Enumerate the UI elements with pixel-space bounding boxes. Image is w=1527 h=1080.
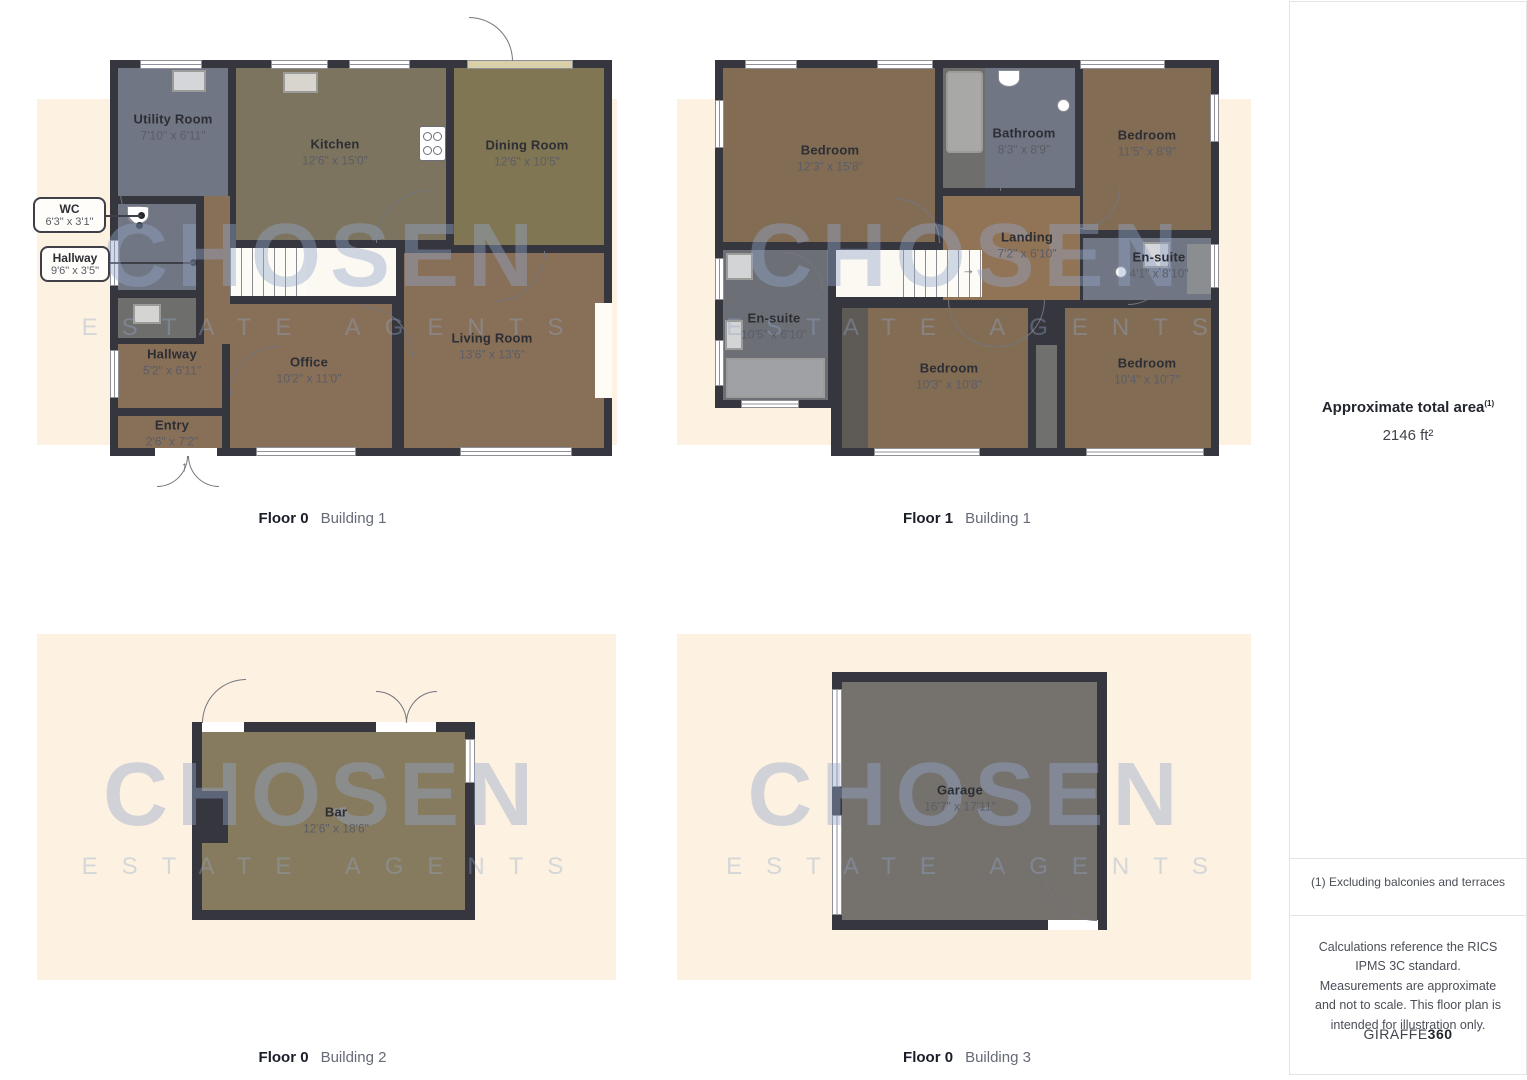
panel-caption: Floor 0Building 1 — [0, 510, 645, 527]
sidebar-divider — [1290, 858, 1526, 859]
window-icon — [741, 400, 799, 408]
window-icon — [349, 60, 410, 69]
sidebar-divider — [1290, 915, 1526, 916]
window-icon — [1210, 244, 1219, 288]
room-name: Dining Room — [485, 138, 568, 153]
room-name: Bedroom — [1114, 356, 1180, 371]
callout-leader — [110, 262, 194, 264]
sink-icon — [133, 304, 161, 324]
bathtub-icon — [946, 71, 983, 153]
room-dims: 10'3" x 10'8" — [916, 378, 982, 392]
footnote-marker: (1) — [1484, 399, 1494, 408]
window-icon — [1080, 60, 1165, 69]
living-recess — [595, 303, 612, 398]
stair-void — [306, 248, 396, 296]
caption-building: Building 2 — [321, 1049, 387, 1066]
room-hall-corridor — [204, 196, 230, 344]
room-label-ensuite-small: En-suite 4'1" x 8'10" — [1129, 250, 1188, 281]
callout-leader — [106, 215, 142, 217]
room-dims: 10'2" x 11'0" — [277, 372, 342, 386]
room-name: Utility Room — [134, 112, 213, 127]
room-label-ensuite-large: En-suite 10'5" x 6'10" — [741, 311, 807, 342]
window-icon — [715, 100, 724, 148]
callout-name: WC — [39, 202, 100, 216]
footnote-text: (1) Excluding balconies and terraces — [1300, 875, 1516, 889]
chimney-breast — [192, 791, 228, 843]
disclaimer-text: Calculations reference the RICS IPMS 3C … — [1314, 938, 1502, 1035]
total-area-title-text: Approximate total area — [1322, 399, 1485, 416]
landing-strip — [842, 308, 868, 448]
room-dims: 11'5" x 8'9" — [1118, 145, 1176, 159]
shower-icon — [726, 253, 753, 280]
window-icon — [877, 60, 933, 69]
room-name: Kitchen — [302, 137, 368, 152]
room-label-entry: Entry 2'6" x 7'2" — [146, 418, 198, 449]
panel-caption: Floor 0Building 2 — [0, 1049, 645, 1066]
bathtub-icon — [726, 358, 825, 398]
room-dims: 7'10" x 6'11" — [134, 129, 213, 143]
window-icon — [745, 60, 797, 69]
room-label-utility: Utility Room 7'10" x 6'11" — [134, 112, 213, 143]
garage-door-icon — [832, 689, 842, 787]
callout-hallway: Hallway 9'6" x 3'5" — [40, 246, 110, 282]
window-icon — [1210, 94, 1219, 142]
panel-caption: Floor 1Building 1 — [646, 510, 1288, 527]
window-icon — [715, 258, 724, 300]
room-label-office: Office 10'2" x 11'0" — [277, 355, 342, 386]
panel-floor0-building3: Garage 16'7" x 17'11" CHOSEN ESTATE AGEN… — [646, 539, 1288, 1076]
caption-floor: Floor 0 — [259, 510, 309, 527]
door-gap — [376, 722, 436, 732]
total-area-title: Approximate total area(1) — [1290, 399, 1526, 416]
window-icon — [874, 448, 980, 456]
room-name: En-suite — [741, 311, 807, 326]
callout-dims: 9'6" x 3'5" — [46, 265, 104, 277]
room-label-bathroom: Bathroom 8'3" x 8'9" — [993, 126, 1056, 157]
caption-building: Building 1 — [965, 510, 1031, 527]
room-name: En-suite — [1129, 250, 1188, 265]
hob-icon — [419, 126, 446, 161]
callout-name: Hallway — [46, 251, 104, 265]
room-dims: 8'3" x 8'9" — [993, 143, 1056, 157]
room-name: Bedroom — [1118, 128, 1176, 143]
caption-building: Building 1 — [321, 510, 387, 527]
panel-floor0-building2: Bar 12'6" x 18'6" CHOSEN ESTATE AGENTS F… — [0, 539, 645, 1076]
room-dims: 7'2" x 6'10" — [997, 247, 1056, 261]
room-label-hallway: Hallway 5'2" x 6'11" — [143, 347, 201, 378]
room-dims: 12'6" x 15'0" — [302, 154, 368, 168]
room-name: Office — [277, 355, 342, 370]
caption-floor: Floor 0 — [903, 1049, 953, 1066]
entry-door-gap — [155, 448, 217, 456]
info-sidebar: Approximate total area(1) 2146 ft² (1) E… — [1289, 1, 1527, 1075]
room-name: Bedroom — [797, 143, 863, 158]
patio-door-icon — [467, 60, 573, 69]
door-gap — [202, 722, 244, 732]
room-name: Bar — [303, 805, 369, 820]
room-name: Garage — [924, 783, 996, 798]
room-dims: 12'3" x 15'8" — [797, 160, 863, 174]
room-dims: 16'7" x 17'11" — [924, 800, 996, 814]
room-label-landing: Landing 7'2" x 6'10" — [997, 230, 1056, 261]
room-dims: 12'6" x 18'6" — [303, 822, 369, 836]
room-label-garage: Garage 16'7" x 17'11" — [924, 783, 996, 814]
room-label-bedroom2: Bedroom 11'5" x 8'9" — [1118, 128, 1176, 159]
room-name: Living Room — [452, 331, 533, 346]
closet-strip — [1036, 345, 1057, 448]
total-area-value: 2146 ft² — [1290, 427, 1526, 444]
sink-icon — [283, 72, 318, 93]
brand-name: GIRAFFE — [1363, 1026, 1427, 1042]
entry-arrow-icon: ↑ — [181, 458, 188, 474]
room-label-kitchen: Kitchen 12'6" x 15'0" — [302, 137, 368, 168]
room-label-living: Living Room 13'6" x 13'6" — [452, 331, 533, 362]
room-name: Hallway — [143, 347, 201, 362]
sink-icon — [1057, 99, 1070, 112]
window-icon — [715, 340, 724, 386]
garage-door-icon — [832, 815, 842, 915]
room-dims: 13'6" x 13'6" — [452, 348, 533, 362]
brand-suffix: 360 — [1428, 1026, 1453, 1042]
caption-building: Building 3 — [965, 1049, 1031, 1066]
room-label-bedroom1: Bedroom 12'3" x 15'8" — [797, 143, 863, 174]
toilet-dot-icon — [136, 222, 143, 229]
window-icon — [1086, 448, 1204, 456]
door-swing-icon — [469, 17, 513, 61]
room-name: Landing — [997, 230, 1056, 245]
window-icon — [110, 350, 119, 398]
panel-floor1-building1: → — [646, 0, 1288, 538]
total-area-block: Approximate total area(1) 2146 ft² — [1290, 399, 1526, 444]
giraffe360-logo: GIRAFFE360 — [1290, 1026, 1526, 1042]
window-icon — [140, 60, 202, 69]
toilet-icon — [998, 70, 1020, 87]
stairs-arrow-icon: → — [962, 262, 975, 277]
room-label-bedroom3: Bedroom 10'3" x 10'8" — [916, 361, 982, 392]
room-name: Bathroom — [993, 126, 1056, 141]
panel-caption: Floor 0Building 3 — [646, 1049, 1288, 1066]
callout-dims: 6'3" x 3'1" — [39, 216, 100, 228]
door-gap — [1048, 920, 1098, 930]
room-dims: 5'2" x 6'11" — [143, 364, 201, 378]
stairs-icon — [230, 248, 306, 296]
caption-floor: Floor 1 — [903, 510, 953, 527]
window-icon — [271, 60, 328, 69]
room-label-bedroom4: Bedroom 10'4" x 10'7" — [1114, 356, 1180, 387]
room-label-bar: Bar 12'6" x 18'6" — [303, 805, 369, 836]
door-swing-icon — [188, 456, 219, 487]
callout-wc: WC 6'3" x 3'1" — [33, 197, 106, 233]
floorplan-page: ↑ Utility Room 7'10" x 6'11" Kitchen 12'… — [0, 0, 1527, 1080]
window-icon — [460, 447, 572, 456]
room-name: Entry — [146, 418, 198, 433]
stair-void — [836, 250, 903, 297]
room-label-dining: Dining Room 12'6" x 10'5" — [485, 138, 568, 169]
sink-icon — [1115, 266, 1127, 278]
sink-icon — [172, 70, 206, 92]
window-icon — [465, 739, 475, 783]
panel-floor0-building1: ↑ Utility Room 7'10" x 6'11" Kitchen 12'… — [0, 0, 645, 538]
room-name: Bedroom — [916, 361, 982, 376]
room-dims: 4'1" x 8'10" — [1129, 267, 1188, 281]
caption-floor: Floor 0 — [259, 1049, 309, 1066]
room-dims: 2'6" x 7'2" — [146, 435, 198, 449]
room-dims: 10'5" x 6'10" — [741, 328, 807, 342]
window-icon — [256, 447, 356, 456]
room-dims: 10'4" x 10'7" — [1114, 373, 1180, 387]
ensuite-fitting — [1187, 244, 1211, 294]
room-dims: 12'6" x 10'5" — [485, 155, 568, 169]
